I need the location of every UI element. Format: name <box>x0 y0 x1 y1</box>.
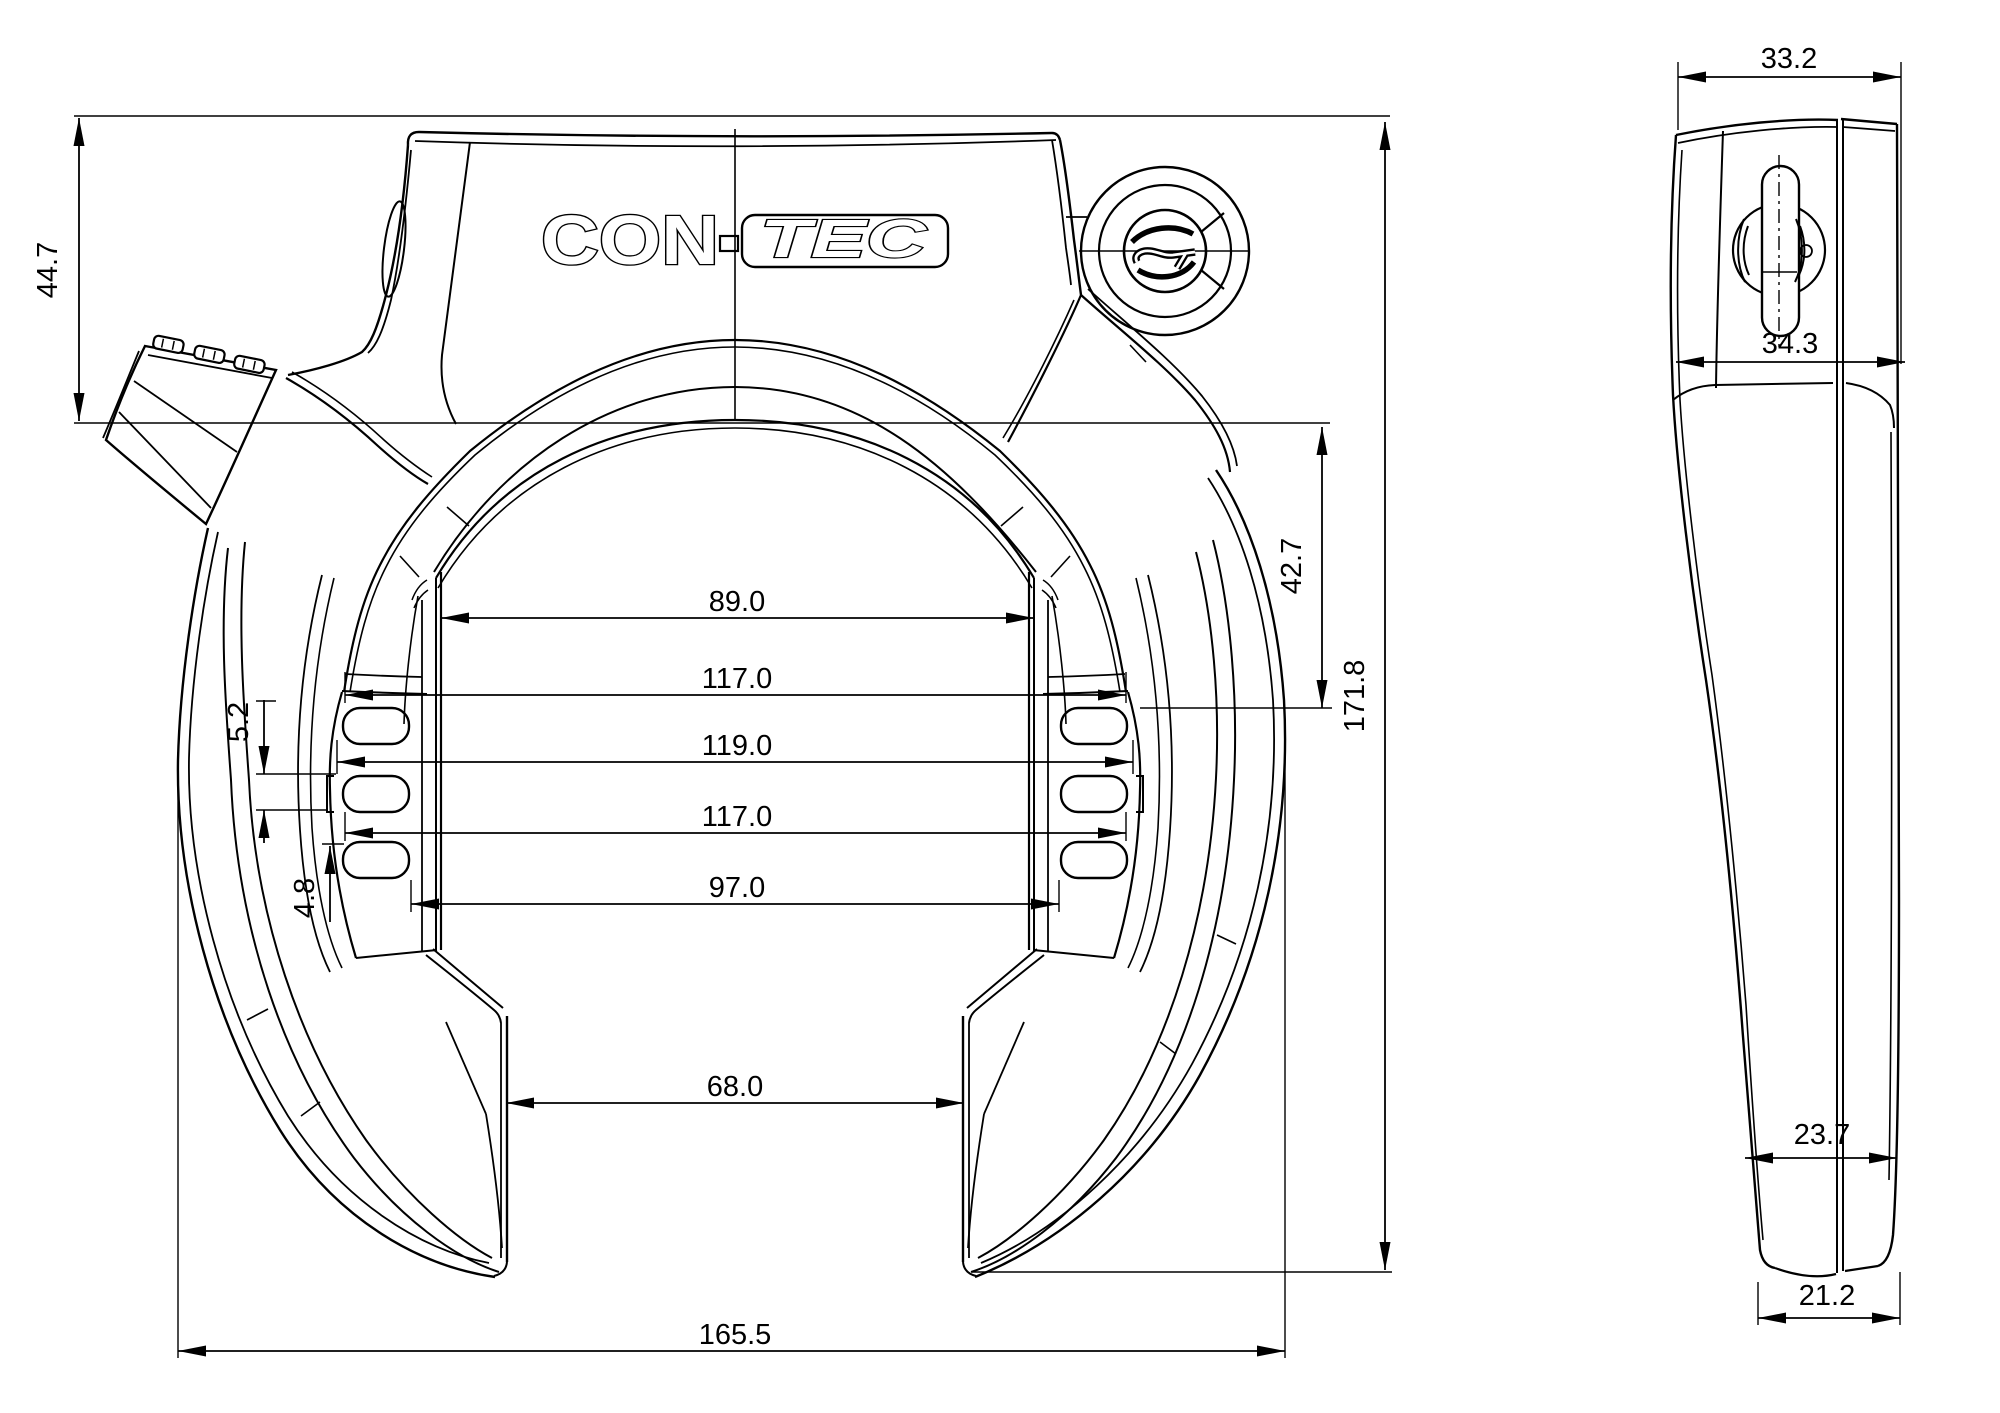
svg-text:117.0: 117.0 <box>702 801 772 833</box>
svg-text:68.0: 68.0 <box>707 1071 763 1103</box>
svg-text:97.0: 97.0 <box>709 872 765 904</box>
svg-text:34.3: 34.3 <box>1762 328 1818 360</box>
svg-text:21.2: 21.2 <box>1799 1280 1855 1312</box>
svg-text:42.7: 42.7 <box>1276 538 1308 594</box>
svg-text:CON: CON <box>541 201 719 279</box>
svg-text:4.8: 4.8 <box>289 878 321 918</box>
svg-text:119.0: 119.0 <box>702 730 772 762</box>
svg-text:117.0: 117.0 <box>702 663 772 695</box>
svg-text:165.5: 165.5 <box>699 1319 772 1351</box>
svg-text:5.2: 5.2 <box>223 702 255 742</box>
svg-text:171.8: 171.8 <box>1339 660 1371 733</box>
svg-text:33.2: 33.2 <box>1761 43 1817 75</box>
svg-text:23.7: 23.7 <box>1794 1119 1850 1151</box>
svg-text:89.0: 89.0 <box>709 586 765 618</box>
svg-text:TEC: TEC <box>760 209 928 269</box>
svg-text:44.7: 44.7 <box>32 242 64 298</box>
